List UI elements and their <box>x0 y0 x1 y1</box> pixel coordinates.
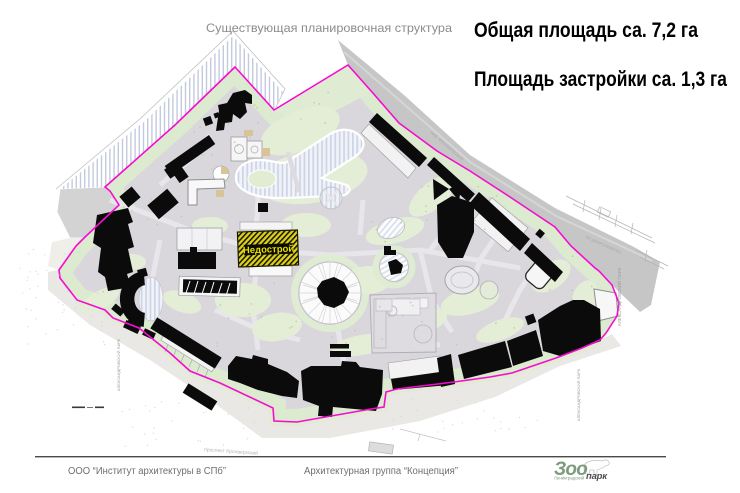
svg-text:АЛЕКСАНДРОВСКИЙ ПАРК: АЛЕКСАНДРОВСКИЙ ПАРК <box>615 267 622 326</box>
svg-text:ООО “Институт архитектуры в СП: ООО “Институт архитектуры в СПб” <box>68 466 226 477</box>
svg-text:Площадь застройки са. 1,3 га: Площадь застройки са. 1,3 га <box>474 67 728 91</box>
svg-text:Архитектурная группа “Концепци: Архитектурная группа “Концепция” <box>304 466 458 477</box>
svg-text:Общая площадь са. 7,2 га: Общая площадь са. 7,2 га <box>474 18 699 42</box>
svg-text:Существующая планировочная стр: Существующая планировочная структура <box>206 21 452 35</box>
svg-text:парк: парк <box>586 471 608 482</box>
svg-text:АЛЕКСАНДРОВСКИЙ ПАРК: АЛЕКСАНДРОВСКИЙ ПАРК <box>116 338 121 391</box>
svg-text:Ленинградский: Ленинградский <box>554 476 585 481</box>
svg-text:Недострой: Недострой <box>243 244 295 257</box>
svg-text:АЛЕКСАНДРОВСКИЙ ПАРК: АЛЕКСАНДРОВСКИЙ ПАРК <box>576 368 581 421</box>
